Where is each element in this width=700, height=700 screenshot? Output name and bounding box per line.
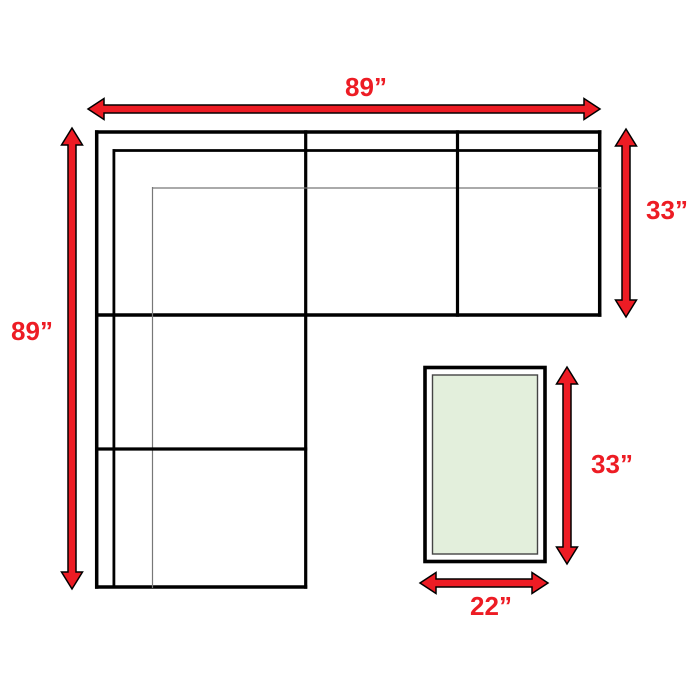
arrow-ottoman-length [557,367,578,564]
label-sofa-width: 89” [345,72,387,102]
diagram-svg: 89” 89” 33” 33” 22” [0,0,700,700]
label-sofa-section-depth: 33” [646,195,688,225]
ottoman-inner-cushion [433,375,538,554]
sofa-dimension-diagram: 89” 89” 33” 33” 22” [0,0,700,700]
arrow-sofa-depth [62,128,83,589]
label-ottoman-length: 33” [591,449,633,479]
arrow-sofa-width [88,99,600,120]
label-sofa-depth: 89” [11,316,53,346]
dimension-arrows [62,99,637,594]
label-ottoman-width: 22” [470,591,512,621]
arrow-sofa-section-depth [616,129,637,317]
ottoman [425,368,545,562]
